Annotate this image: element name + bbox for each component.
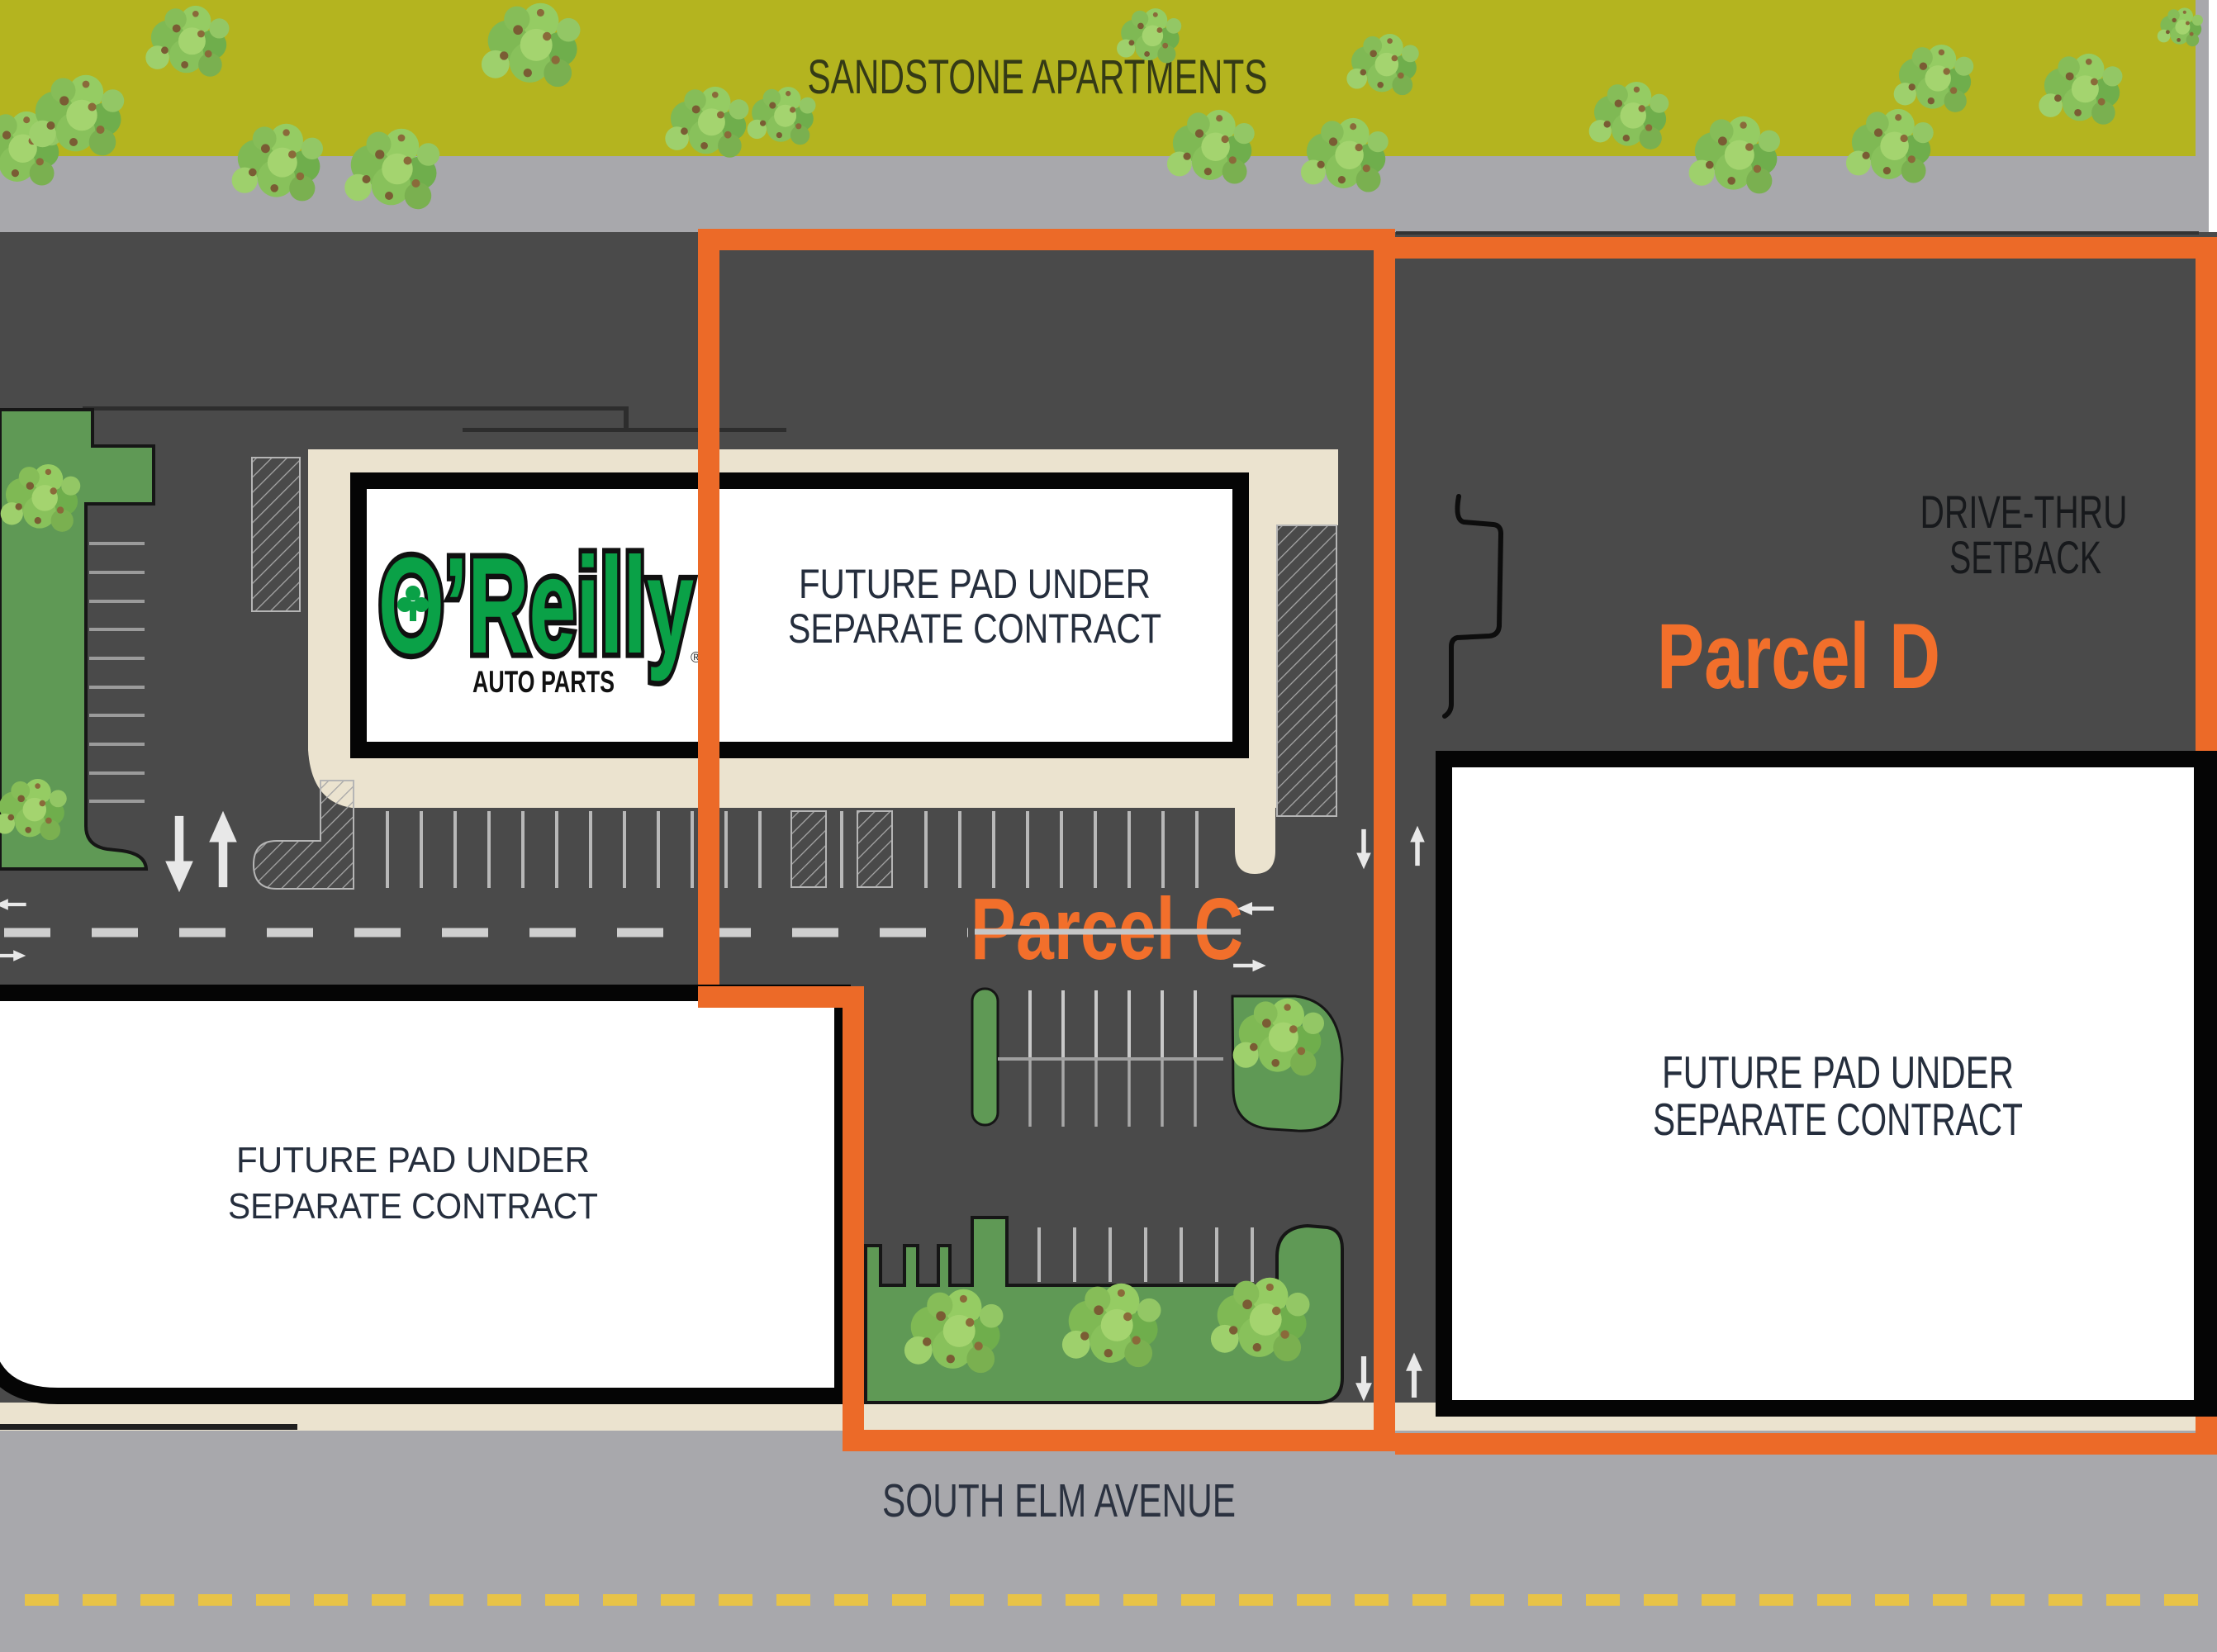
svg-text:FUTURE PAD UNDER: FUTURE PAD UNDER bbox=[1662, 1047, 2014, 1098]
svg-text:SANDSTONE APARTMENTS: SANDSTONE APARTMENTS bbox=[808, 50, 1268, 104]
svg-text:DRIVE-THRU: DRIVE-THRU bbox=[1920, 486, 2128, 538]
svg-text:SEPARATE CONTRACT: SEPARATE CONTRACT bbox=[788, 605, 1161, 652]
svg-text:Parcel D: Parcel D bbox=[1657, 605, 1940, 708]
svg-text:SEPARATE CONTRACT: SEPARATE CONTRACT bbox=[1653, 1094, 2023, 1145]
svg-text:FUTURE PAD UNDER: FUTURE PAD UNDER bbox=[236, 1140, 590, 1180]
svg-text:SOUTH ELM AVENUE: SOUTH ELM AVENUE bbox=[882, 1474, 1236, 1527]
svg-text:AUTO PARTS: AUTO PARTS bbox=[472, 665, 615, 699]
svg-text:SETBACK: SETBACK bbox=[1949, 531, 2101, 583]
svg-text:FUTURE PAD UNDER: FUTURE PAD UNDER bbox=[799, 561, 1151, 607]
svg-text:SEPARATE CONTRACT: SEPARATE CONTRACT bbox=[228, 1186, 598, 1227]
